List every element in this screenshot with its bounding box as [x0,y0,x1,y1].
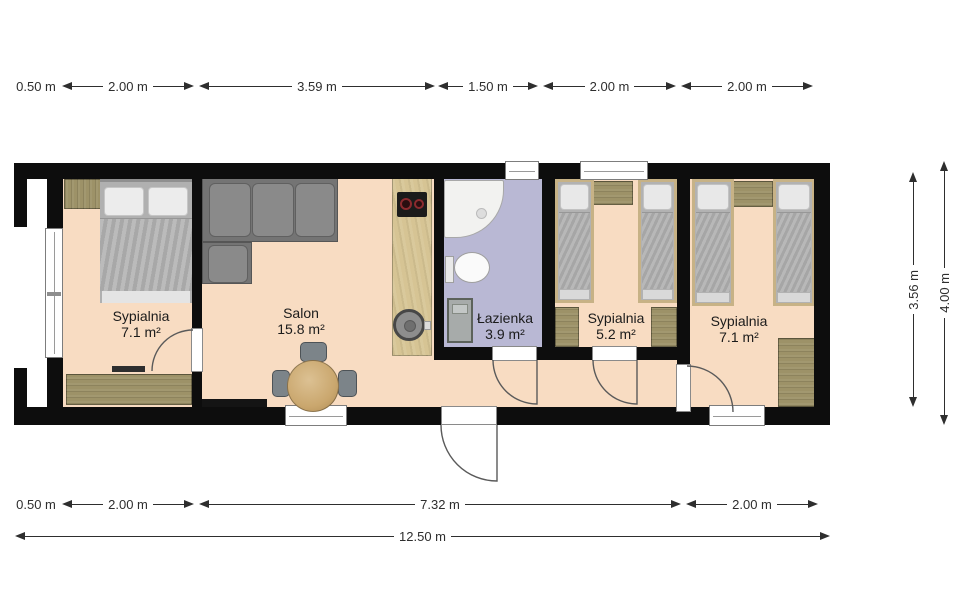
wall-bathroom-bedroom [542,163,555,360]
dim-top-5: 2.00 m [681,78,813,94]
bed-foot [778,293,810,302]
window-mullion [47,292,61,296]
dresser [778,338,815,407]
door-opening-bedroom-middle [592,346,637,361]
room-name: Sypialnia [113,308,170,324]
door-opening-bedroom-right [676,364,691,412]
dim-top-2: 3.59 m [199,78,435,94]
dining-table [287,360,339,412]
toilet-tank [445,256,454,283]
room-name: Łazienka [477,310,533,326]
cooktop [397,192,427,217]
corner-sofa [202,177,338,242]
sofa-cushion [208,245,248,283]
nightstand [593,181,633,205]
dresser [651,307,677,347]
dim-top-1: 2.00 m [62,78,194,94]
dresser [555,307,579,347]
pillow [104,187,144,216]
pillow [778,184,810,210]
wall-right [814,163,830,425]
room-name: Sypialnia [588,310,645,326]
dim-top-3: 1.50 m [438,78,538,94]
wall-hallway [434,347,690,360]
door-opening-bedroom-left [191,328,203,372]
toilet-bowl [454,252,490,283]
hallway-floor [434,360,677,407]
sofa-cushion [252,183,294,237]
faucet [424,321,431,330]
dim-top-4: 2.00 m [543,78,676,94]
blanket [777,212,811,292]
sofa-cushion [209,183,251,237]
sofa-cushion [295,183,335,237]
wall-bottom [14,407,830,425]
dim-bottom-2: 7.32 m [199,496,681,512]
dim-right-outer: 4.00 m [936,161,952,425]
room-label-bedroom-right: Sypialnia 7.1 m² [711,313,768,345]
door-opening-entrance [441,406,497,425]
double-bed [100,178,192,303]
room-label-bedroom-left: Sypialnia 7.1 m² [113,308,170,340]
dim-top-0: 0.50 m [12,79,60,94]
window-bathroom [505,161,539,180]
dim-right-inner: 3.56 m [905,172,921,407]
burner [414,199,424,209]
washing-machine [447,298,473,343]
dim-bottom-3: 2.00 m [686,496,818,512]
blanket [696,212,730,292]
dining-chair [338,370,357,397]
room-name: Sypialnia [711,313,768,329]
bed-foot [697,293,729,302]
single-bed [692,179,734,306]
room-label-bedroom-middle: Sypialnia 5.2 m² [588,310,645,342]
bed-foot [102,291,190,303]
bed-foot [643,290,672,299]
room-area: 15.8 m² [277,321,324,337]
kitchen-sink [393,309,425,341]
blanket [559,212,590,289]
pillow [643,184,672,210]
burner [400,198,412,210]
dim-bottom-0: 0.50 m [12,497,60,512]
room-label-bathroom: Łazienka 3.9 m² [477,310,533,342]
single-bed [773,179,815,306]
bed-foot [560,290,589,299]
room-name: Salon [277,305,324,321]
door-arc-entrance [441,425,497,481]
duvet [100,218,192,291]
nightstand [733,181,773,207]
room-area: 3.9 m² [477,326,533,342]
dim-bottom-1: 2.00 m [62,496,194,512]
floorplan-canvas: Sypialnia 7.1 m² Salon 15.8 m² Łazienka … [0,0,960,612]
window-bedroom-right [709,405,765,426]
window-left [45,228,63,358]
window-bedroom-middle [580,161,648,180]
wall-top [14,163,830,179]
wall-stub-bottom-left [14,368,27,425]
pillow [697,184,729,210]
single-bed [638,179,677,303]
pillow [560,184,589,210]
room-area: 7.1 m² [711,329,768,345]
room-label-salon: Salon 15.8 m² [277,305,324,337]
tv [202,399,267,407]
door-opening-bathroom [492,346,537,361]
room-area: 7.1 m² [113,324,170,340]
room-area: 5.2 m² [588,326,645,342]
wall-stub-top-left [14,163,27,227]
dining-chair [300,342,327,362]
wall-shelf [112,366,145,372]
single-bed [555,179,594,303]
dim-overall: 12.50 m [15,528,830,544]
sofa-chaise [202,242,252,284]
dresser [66,374,192,405]
blanket [642,212,673,289]
pillow [148,187,188,216]
wall-salon-bathroom [434,163,444,360]
